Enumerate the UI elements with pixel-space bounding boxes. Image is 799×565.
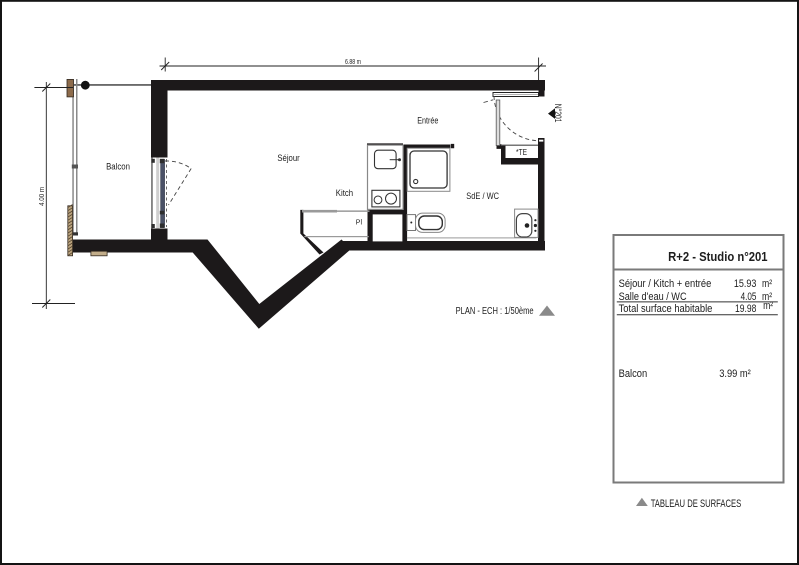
svg-text:Balcon: Balcon	[106, 161, 130, 171]
svg-text:Balcon: Balcon	[619, 368, 648, 380]
svg-text:SdE / WC: SdE / WC	[466, 191, 499, 201]
svg-text:Entrée: Entrée	[417, 116, 438, 126]
svg-text:Séjour / Kitch + entrée: Séjour / Kitch + entrée	[619, 278, 712, 290]
svg-text:PLAN - ECH : 1/50ème: PLAN - ECH : 1/50ème	[456, 306, 534, 317]
svg-text:19.98: 19.98	[735, 303, 756, 315]
svg-text:R+2 - Studio n°201: R+2 - Studio n°201	[668, 249, 768, 264]
svg-text:3.99 m²: 3.99 m²	[719, 368, 751, 380]
svg-text:4.05: 4.05	[741, 291, 757, 303]
svg-text:Séjour: Séjour	[277, 153, 299, 163]
svg-text:Salle d'eau / WC: Salle d'eau / WC	[619, 291, 687, 303]
svg-text:6.88 m: 6.88 m	[345, 57, 361, 66]
svg-text:Kitch: Kitch	[336, 188, 353, 198]
svg-text:*TE: *TE	[516, 148, 527, 157]
svg-text:Total surface habitable: Total surface habitable	[619, 303, 713, 315]
svg-text:Pl: Pl	[356, 217, 363, 226]
svg-text:4.00 m: 4.00 m	[37, 187, 46, 206]
svg-text:15.93: 15.93	[734, 278, 757, 290]
svg-text:TABLEAU DE SURFACES: TABLEAU DE SURFACES	[651, 498, 742, 510]
svg-text:m²: m²	[762, 278, 772, 290]
